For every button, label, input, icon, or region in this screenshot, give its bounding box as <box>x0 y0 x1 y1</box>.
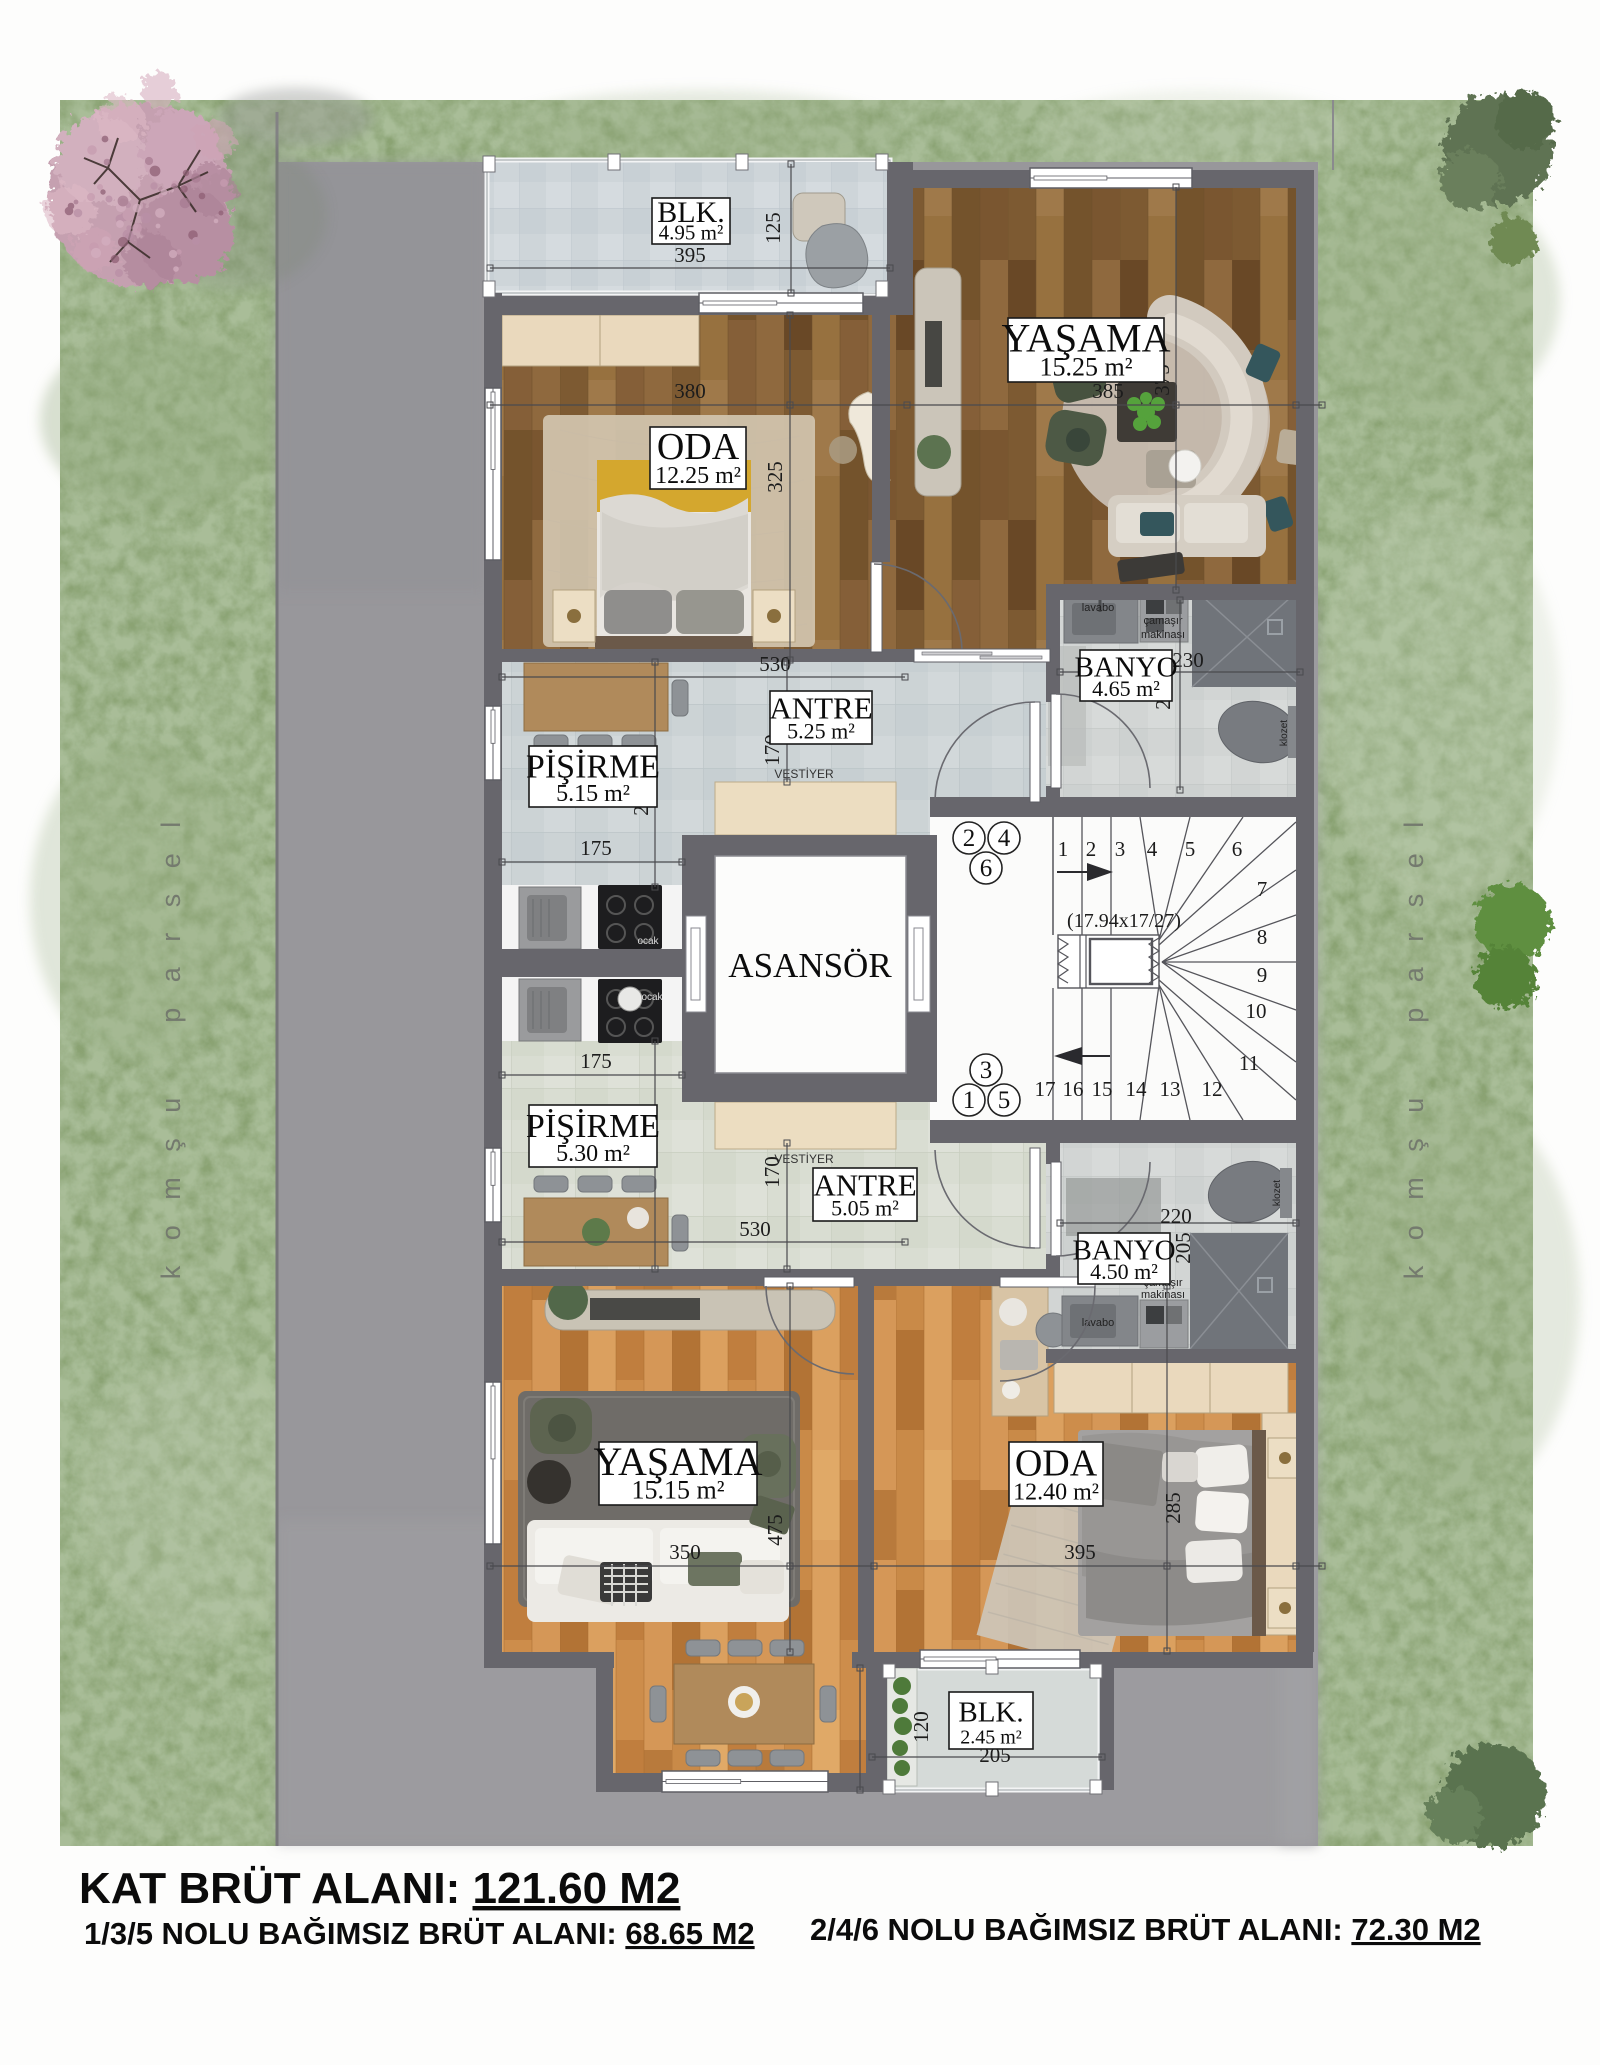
svg-text:6: 6 <box>1232 837 1243 861</box>
svg-text:16: 16 <box>1063 1077 1084 1101</box>
svg-text:5: 5 <box>1185 837 1196 861</box>
svg-text:120: 120 <box>909 1711 933 1743</box>
svg-text:15: 15 <box>1092 1077 1113 1101</box>
svg-text:8: 8 <box>1257 925 1268 949</box>
svg-text:475: 475 <box>763 1514 787 1546</box>
svg-text:285: 285 <box>1161 1492 1185 1524</box>
svg-text:3: 3 <box>980 1057 993 1084</box>
svg-text:1/3/5 NOLU BAĞIMSIZ BRÜT ALANI: 1/3/5 NOLU BAĞIMSIZ BRÜT ALANI: 68.65 M2 <box>84 1916 755 1951</box>
svg-text:klozet: klozet <box>1272 1180 1283 1206</box>
svg-text:4: 4 <box>1147 837 1158 861</box>
svg-text:çamaşır: çamaşır <box>1143 615 1182 627</box>
svg-text:5.25 m²: 5.25 m² <box>787 719 855 744</box>
svg-text:380: 380 <box>674 379 706 403</box>
svg-text:14: 14 <box>1126 1077 1148 1101</box>
svg-text:5: 5 <box>998 1087 1011 1114</box>
svg-text:5.15 m²: 5.15 m² <box>556 781 630 807</box>
svg-text:BLK.: BLK. <box>958 1697 1023 1729</box>
svg-text:1: 1 <box>1058 837 1069 861</box>
svg-text:125: 125 <box>761 212 785 244</box>
svg-text:4.50 m²: 4.50 m² <box>1090 1259 1158 1284</box>
svg-text:k o m ş u p a r s e l: k o m ş u p a r s e l <box>156 813 186 1280</box>
svg-text:15.15 m²: 15.15 m² <box>631 1476 724 1505</box>
svg-text:220: 220 <box>1160 1204 1192 1228</box>
svg-text:6: 6 <box>980 855 993 882</box>
svg-text:2: 2 <box>963 825 976 852</box>
svg-text:3: 3 <box>1115 837 1126 861</box>
svg-text:2: 2 <box>1086 837 1097 861</box>
svg-text:170: 170 <box>760 1156 784 1188</box>
svg-text:395: 395 <box>674 243 706 267</box>
svg-text:PİŞİRME: PİŞİRME <box>526 1108 660 1145</box>
svg-text:(17.94x17/27): (17.94x17/27) <box>1067 910 1181 932</box>
svg-text:7: 7 <box>1257 877 1268 901</box>
svg-text:325: 325 <box>763 461 787 493</box>
svg-text:2/4/6 NOLU BAĞIMSIZ BRÜT ALANI: 2/4/6 NOLU BAĞIMSIZ BRÜT ALANI: 72.30 M2 <box>810 1912 1481 1947</box>
svg-text:10: 10 <box>1246 999 1267 1023</box>
svg-text:lavabo: lavabo <box>1082 602 1114 614</box>
svg-text:12.25 m²: 12.25 m² <box>655 463 741 489</box>
svg-text:350: 350 <box>669 1540 701 1564</box>
svg-text:makinası: makinası <box>1141 1289 1185 1301</box>
svg-text:175: 175 <box>580 1049 612 1073</box>
svg-text:ODA: ODA <box>1015 1442 1098 1484</box>
svg-text:VESTİYER: VESTİYER <box>774 767 834 781</box>
svg-text:makinası: makinası <box>1141 629 1185 641</box>
svg-text:15.25 m²: 15.25 m² <box>1039 353 1132 382</box>
svg-text:ocak: ocak <box>641 992 663 1003</box>
svg-text:1: 1 <box>963 1087 976 1114</box>
svg-text:k o m ş u p a r s e l: k o m ş u p a r s e l <box>1399 813 1429 1280</box>
svg-text:17: 17 <box>1035 1077 1056 1101</box>
svg-text:5.05 m²: 5.05 m² <box>831 1196 899 1221</box>
svg-text:12.40 m²: 12.40 m² <box>1013 1480 1099 1506</box>
svg-text:4: 4 <box>998 825 1011 852</box>
svg-text:ocak: ocak <box>637 936 659 947</box>
svg-text:12: 12 <box>1202 1077 1223 1101</box>
svg-text:13: 13 <box>1160 1077 1181 1101</box>
svg-text:530: 530 <box>759 652 791 676</box>
svg-text:175: 175 <box>580 836 612 860</box>
svg-text:klozet: klozet <box>1279 720 1290 746</box>
svg-text:5.30 m²: 5.30 m² <box>556 1141 630 1167</box>
svg-text:4.65 m²: 4.65 m² <box>1092 676 1160 701</box>
svg-text:530: 530 <box>739 1217 771 1241</box>
svg-text:11: 11 <box>1239 1051 1259 1075</box>
svg-text:395: 395 <box>1064 1540 1096 1564</box>
svg-text:ASANSÖR: ASANSÖR <box>728 946 892 985</box>
svg-text:9: 9 <box>1257 963 1268 987</box>
svg-text:2.45 m²: 2.45 m² <box>960 1726 1022 1748</box>
svg-text:4.95 m²: 4.95 m² <box>659 220 724 244</box>
svg-text:KAT BRÜT ALANI: 121.60 M2: KAT BRÜT ALANI: 121.60 M2 <box>79 1864 680 1913</box>
